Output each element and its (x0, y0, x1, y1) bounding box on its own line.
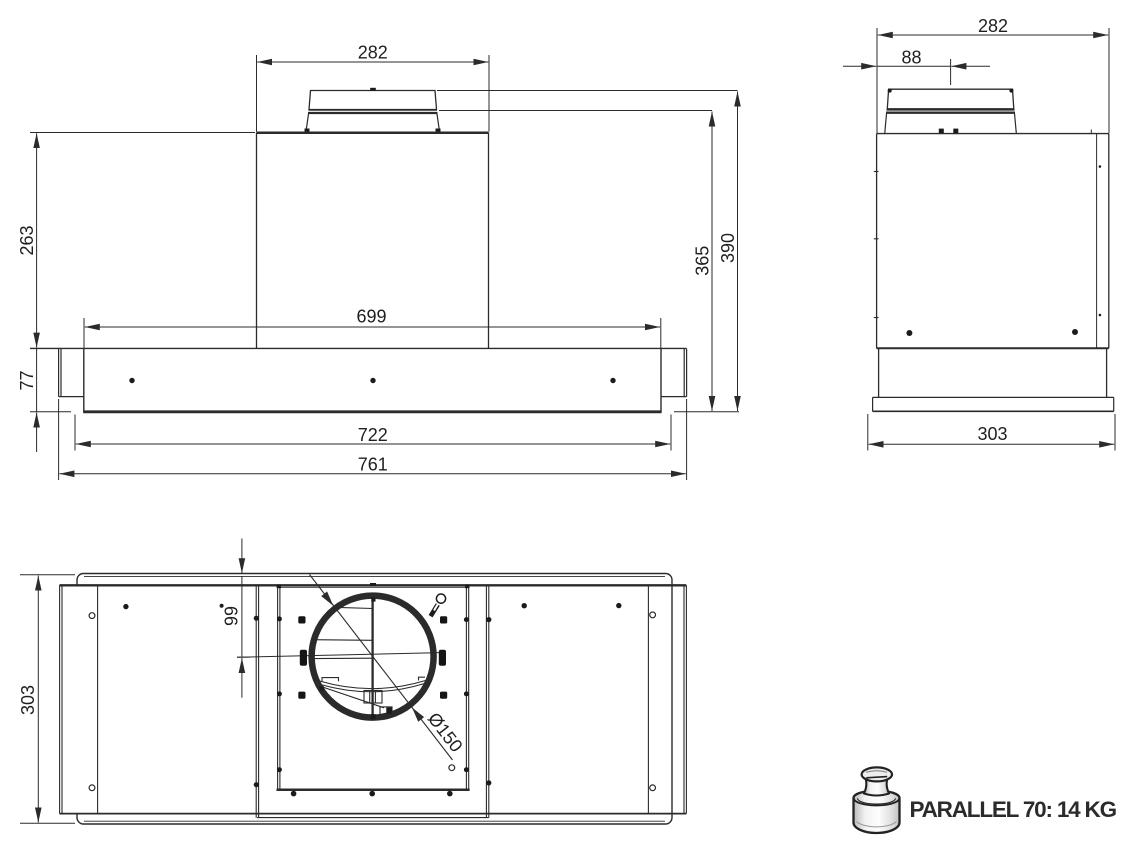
svg-text:Ø150: Ø150 (424, 709, 467, 756)
svg-text:390: 390 (718, 233, 738, 263)
svg-text:761: 761 (358, 454, 388, 474)
svg-text:77: 77 (17, 370, 37, 390)
svg-text:263: 263 (17, 225, 37, 255)
svg-text:99: 99 (221, 606, 241, 626)
svg-text:365: 365 (693, 246, 713, 276)
svg-text:699: 699 (356, 307, 386, 327)
svg-text:88: 88 (901, 47, 921, 67)
svg-text:303: 303 (18, 685, 38, 715)
svg-text:282: 282 (978, 16, 1008, 36)
svg-text:303: 303 (977, 424, 1007, 444)
svg-text:722: 722 (358, 425, 388, 445)
svg-text:PARALLEL 70: 14 KG: PARALLEL 70: 14 KG (910, 797, 1117, 822)
svg-text:282: 282 (358, 42, 388, 62)
